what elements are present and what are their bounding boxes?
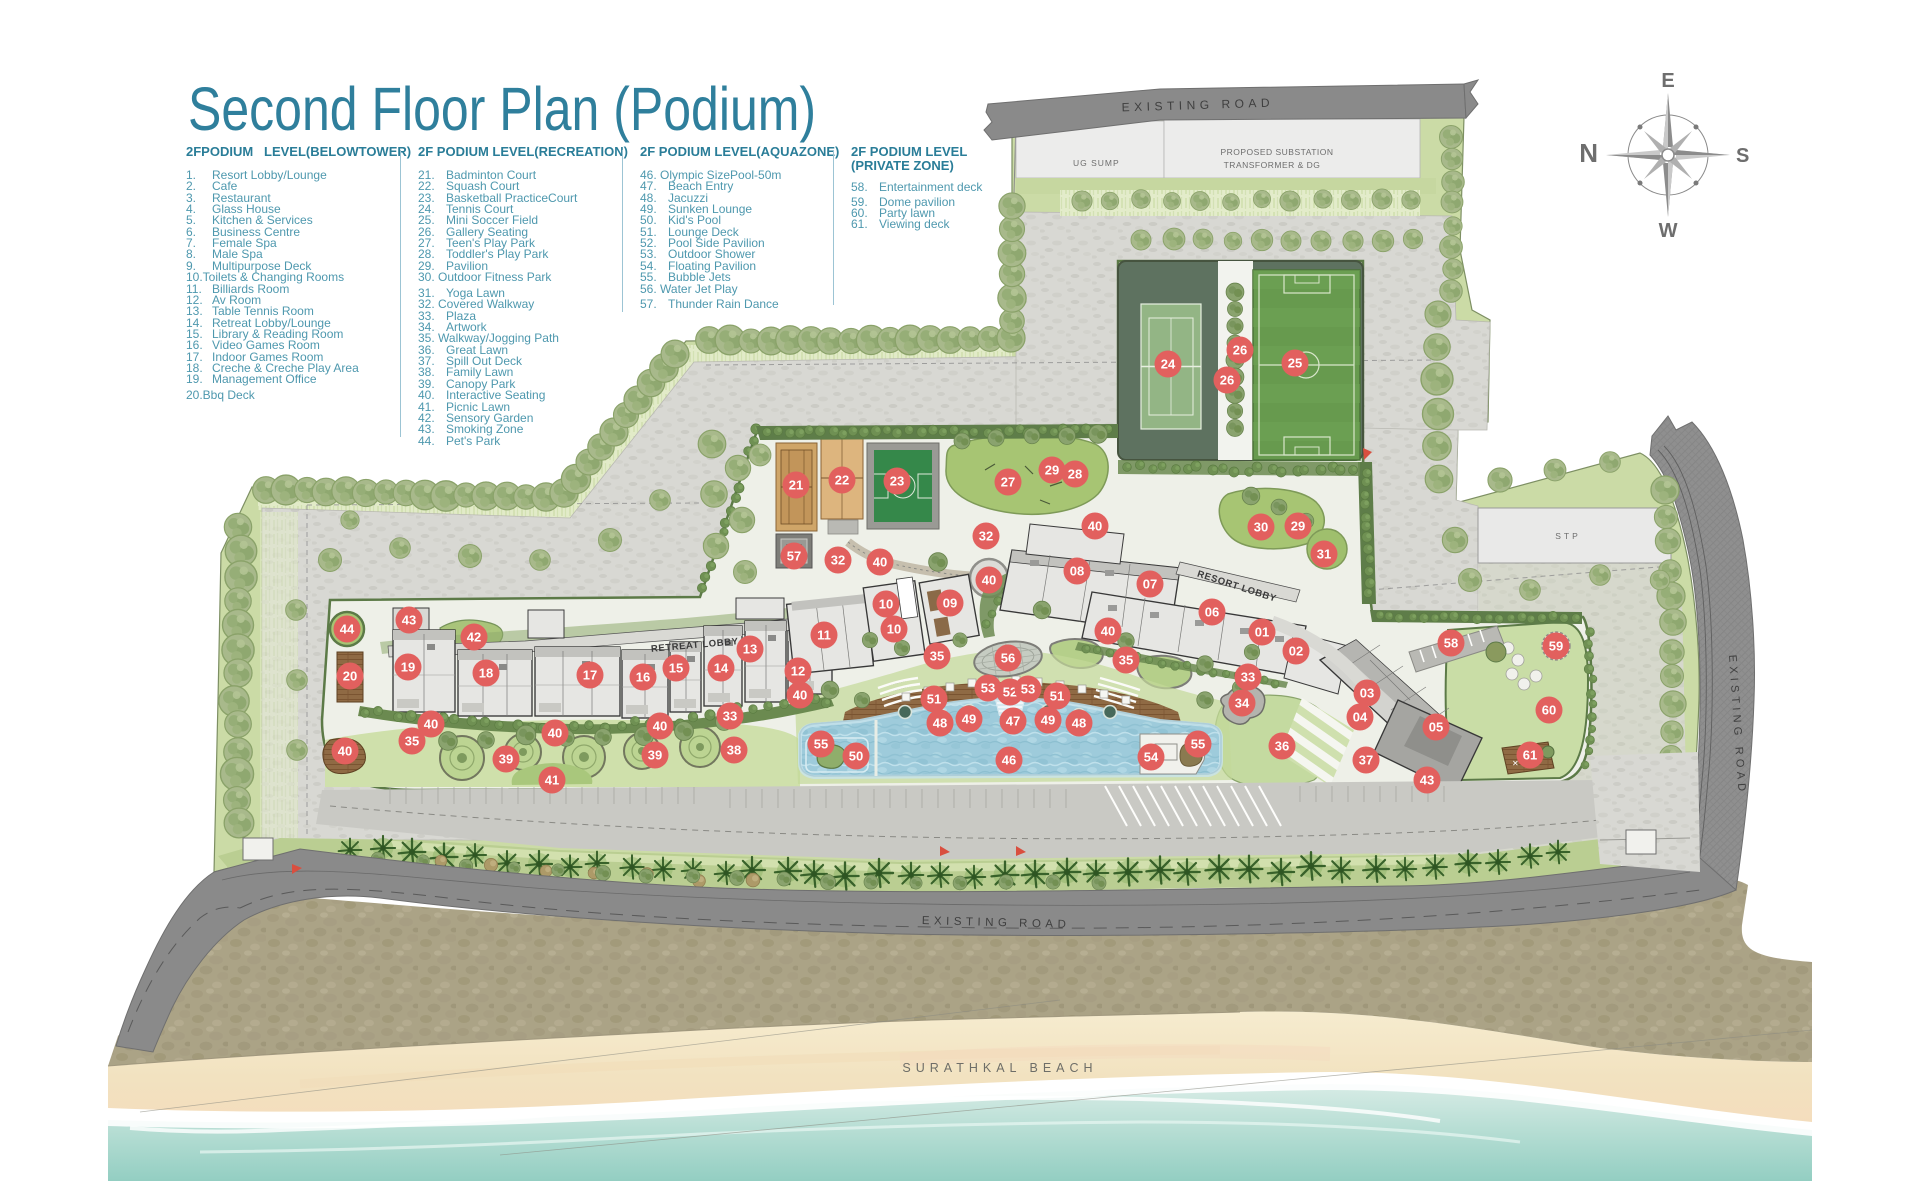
svg-text:01: 01: [1255, 625, 1269, 640]
svg-text:51: 51: [927, 692, 941, 707]
svg-text:46: 46: [1002, 753, 1016, 768]
svg-text:48: 48: [933, 716, 947, 731]
svg-text:04: 04: [1353, 710, 1368, 725]
svg-text:27: 27: [1001, 475, 1015, 490]
svg-text:44: 44: [340, 622, 355, 637]
svg-text:30: 30: [1254, 520, 1268, 535]
svg-text:54: 54: [1144, 750, 1159, 765]
svg-text:26: 26: [1233, 343, 1247, 358]
svg-text:40: 40: [338, 744, 352, 759]
svg-text:19: 19: [401, 660, 415, 675]
svg-text:SURATHKAL BEACH: SURATHKAL BEACH: [902, 1061, 1097, 1075]
svg-text:11: 11: [817, 628, 831, 643]
svg-text:50: 50: [849, 749, 863, 764]
svg-text:33: 33: [1241, 670, 1255, 685]
svg-text:PROPOSED SUBSTATION: PROPOSED SUBSTATION: [1220, 147, 1333, 157]
svg-text:29: 29: [1045, 463, 1059, 478]
svg-text:32: 32: [979, 529, 993, 544]
svg-text:UG SUMP: UG SUMP: [1073, 158, 1120, 168]
svg-text:40: 40: [793, 688, 807, 703]
svg-text:23: 23: [890, 474, 904, 489]
svg-text:55: 55: [814, 737, 828, 752]
svg-text:40: 40: [653, 719, 667, 734]
svg-text:51: 51: [1050, 689, 1064, 704]
svg-text:35: 35: [1119, 653, 1133, 668]
svg-text:N: N: [1579, 138, 1598, 168]
svg-text:38: 38: [727, 743, 741, 758]
svg-text:47: 47: [1006, 714, 1020, 729]
svg-text:41: 41: [545, 773, 559, 788]
svg-text:24: 24: [1161, 357, 1176, 372]
svg-text:49: 49: [962, 712, 976, 727]
svg-text:55: 55: [1191, 737, 1205, 752]
svg-text:37: 37: [1359, 753, 1373, 768]
svg-text:56: 56: [1001, 651, 1015, 666]
svg-text:58: 58: [1444, 636, 1458, 651]
svg-text:39: 39: [499, 752, 513, 767]
svg-text:60: 60: [1542, 703, 1556, 718]
svg-text:10: 10: [879, 597, 893, 612]
svg-text:53: 53: [1021, 682, 1035, 697]
svg-text:53: 53: [981, 681, 995, 696]
svg-text:61: 61: [1523, 748, 1537, 763]
svg-text:22: 22: [835, 473, 849, 488]
svg-text:20: 20: [343, 669, 357, 684]
svg-text:40: 40: [1101, 624, 1115, 639]
svg-text:32: 32: [831, 553, 845, 568]
svg-text:59: 59: [1549, 639, 1563, 654]
svg-text:09: 09: [943, 596, 957, 611]
svg-text:S: S: [1736, 145, 1749, 167]
svg-text:31: 31: [1317, 547, 1331, 562]
svg-text:03: 03: [1360, 686, 1374, 701]
svg-text:07: 07: [1143, 577, 1157, 592]
svg-text:33: 33: [723, 709, 737, 724]
svg-text:40: 40: [873, 555, 887, 570]
svg-text:36: 36: [1275, 739, 1289, 754]
svg-text:25: 25: [1288, 356, 1302, 371]
svg-text:W: W: [1659, 220, 1678, 242]
svg-text:14: 14: [714, 661, 729, 676]
svg-text:40: 40: [982, 573, 996, 588]
svg-text:13: 13: [743, 642, 757, 657]
svg-text:17: 17: [583, 668, 597, 683]
svg-text:26: 26: [1220, 373, 1234, 388]
svg-text:40: 40: [424, 717, 438, 732]
svg-text:29: 29: [1291, 519, 1305, 534]
svg-text:15: 15: [669, 661, 683, 676]
svg-text:12: 12: [791, 664, 805, 679]
svg-text:08: 08: [1070, 564, 1084, 579]
svg-text:40: 40: [548, 726, 562, 741]
svg-text:40: 40: [1088, 519, 1102, 534]
svg-text:49: 49: [1041, 713, 1055, 728]
svg-text:35: 35: [930, 649, 944, 664]
svg-text:35: 35: [405, 734, 419, 749]
svg-text:43: 43: [1420, 773, 1434, 788]
svg-text:39: 39: [648, 748, 662, 763]
svg-text:21: 21: [789, 478, 803, 493]
svg-text:57: 57: [787, 549, 801, 564]
svg-text:02: 02: [1289, 644, 1303, 659]
svg-text:06: 06: [1205, 605, 1219, 620]
svg-text:10: 10: [887, 622, 901, 637]
svg-text:STP: STP: [1555, 531, 1581, 541]
svg-text:43: 43: [402, 613, 416, 628]
svg-text:28: 28: [1068, 467, 1082, 482]
svg-text:48: 48: [1072, 716, 1086, 731]
svg-text:05: 05: [1429, 720, 1443, 735]
svg-text:42: 42: [467, 630, 481, 645]
svg-text:34: 34: [1235, 696, 1250, 711]
svg-text:E: E: [1661, 70, 1674, 92]
svg-text:TRANSFORMER & DG: TRANSFORMER & DG: [1224, 160, 1321, 170]
svg-text:18: 18: [479, 666, 493, 681]
svg-text:16: 16: [636, 670, 650, 685]
